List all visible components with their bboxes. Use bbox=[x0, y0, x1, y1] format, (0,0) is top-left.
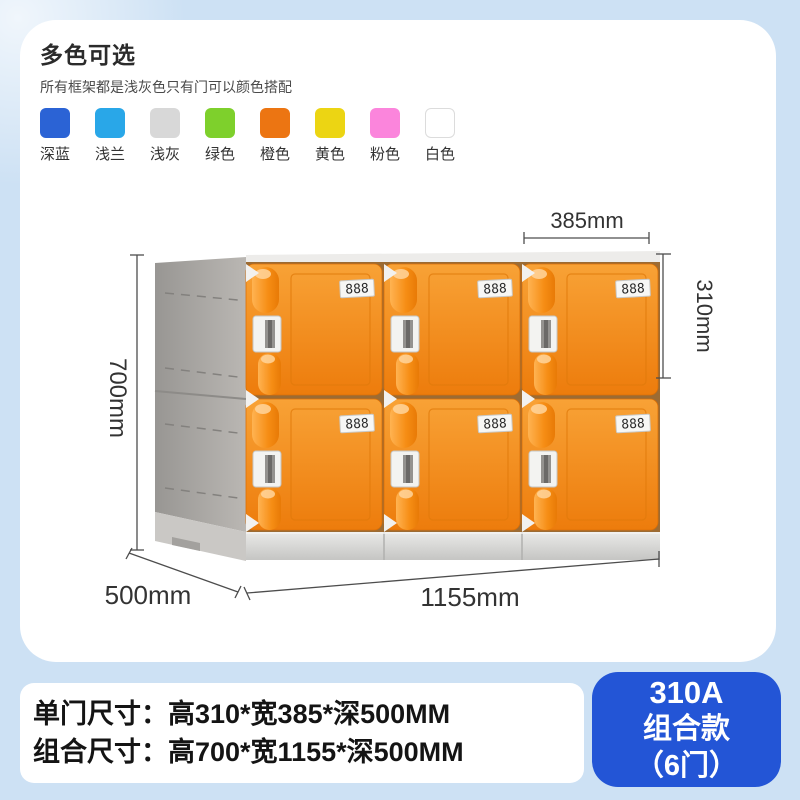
darkblue-swatch[interactable] bbox=[40, 108, 70, 138]
spec-combined: 组合尺寸：高700*宽1155*深500MM bbox=[33, 733, 584, 771]
yellow-swatch[interactable] bbox=[315, 108, 345, 138]
swatch-label: 粉色 bbox=[370, 143, 400, 164]
model-badge: 310A 组合款 （6门） bbox=[592, 672, 781, 787]
green-swatch[interactable] bbox=[205, 108, 235, 138]
color-option-lightblue[interactable]: 浅兰 bbox=[95, 108, 125, 164]
color-option-darkblue[interactable]: 深蓝 bbox=[40, 108, 70, 164]
orange-swatch[interactable] bbox=[260, 108, 290, 138]
color-panel-title: 多色可选 bbox=[40, 36, 776, 70]
color-option-lightgray[interactable]: 浅灰 bbox=[150, 108, 180, 164]
swatch-label: 浅兰 bbox=[95, 143, 125, 164]
badge-door-count: （6门） bbox=[635, 748, 738, 785]
color-panel-subtitle: 所有框架都是浅灰色只有门可以颜色搭配 bbox=[40, 77, 776, 97]
product-card: 多色可选 所有框架都是浅灰色只有门可以颜色搭配 深蓝 浅兰 浅灰 绿色 橙色 黄… bbox=[20, 20, 776, 662]
badge-series: 组合款 bbox=[643, 711, 730, 748]
color-option-green[interactable]: 绿色 bbox=[205, 108, 235, 164]
lightgray-swatch[interactable] bbox=[150, 108, 180, 138]
swatch-label: 深蓝 bbox=[40, 143, 70, 164]
color-panel-header: 多色可选 所有框架都是浅灰色只有门可以颜色搭配 bbox=[20, 20, 776, 97]
spec-single-door: 单门尺寸：高310*宽385*深500MM bbox=[33, 695, 584, 733]
swatch-label: 白色 bbox=[425, 143, 455, 164]
swatch-label: 绿色 bbox=[205, 143, 235, 164]
badge-model: 310A bbox=[649, 674, 723, 711]
spec-box: 单门尺寸：高310*宽385*深500MM 组合尺寸：高700*宽1155*深5… bbox=[20, 683, 584, 783]
color-option-white[interactable]: 白色 bbox=[425, 108, 455, 164]
color-option-pink[interactable]: 粉色 bbox=[370, 108, 400, 164]
swatch-label: 黄色 bbox=[315, 143, 345, 164]
pink-swatch[interactable] bbox=[370, 108, 400, 138]
swatch-label: 浅灰 bbox=[150, 143, 180, 164]
color-option-yellow[interactable]: 黄色 bbox=[315, 108, 345, 164]
white-swatch[interactable] bbox=[425, 108, 455, 138]
color-swatch-row: 深蓝 浅兰 浅灰 绿色 橙色 黄色 粉色 白色 bbox=[40, 108, 776, 164]
swatch-label: 橙色 bbox=[260, 143, 290, 164]
lightblue-swatch[interactable] bbox=[95, 108, 125, 138]
color-option-orange[interactable]: 橙色 bbox=[260, 108, 290, 164]
page-background: { "page": { "background_color": "#cde1f4… bbox=[0, 0, 800, 800]
